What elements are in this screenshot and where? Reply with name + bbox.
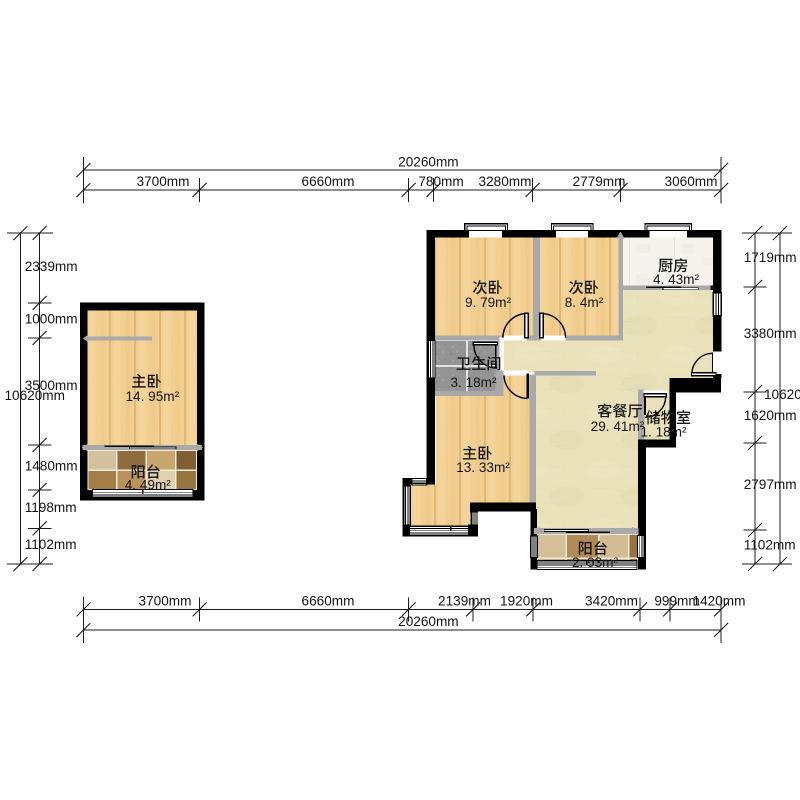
svg-text:14. 95m²: 14. 95m² bbox=[125, 389, 179, 404]
svg-text:1102mm: 1102mm bbox=[744, 538, 796, 553]
svg-text:3280mm: 3280mm bbox=[479, 174, 532, 189]
svg-text:13. 33m²: 13. 33m² bbox=[456, 460, 510, 475]
svg-text:3060mm: 3060mm bbox=[665, 174, 718, 189]
svg-text:3500mm: 3500mm bbox=[25, 378, 78, 393]
svg-text:4. 49m²: 4. 49m² bbox=[125, 478, 172, 493]
svg-text:20260mm: 20260mm bbox=[398, 155, 458, 170]
svg-text:1. 18m²: 1. 18m² bbox=[640, 425, 687, 440]
svg-text:2779mm: 2779mm bbox=[573, 174, 626, 189]
svg-text:780mm: 780mm bbox=[418, 174, 463, 189]
svg-text:2339mm: 2339mm bbox=[25, 259, 78, 274]
svg-text:3700mm: 3700mm bbox=[137, 174, 190, 189]
svg-text:4. 43m²: 4. 43m² bbox=[653, 272, 700, 287]
svg-text:1719mm: 1719mm bbox=[744, 250, 797, 265]
svg-text:3700mm: 3700mm bbox=[139, 594, 192, 609]
svg-text:20260mm: 20260mm bbox=[398, 614, 458, 629]
svg-text:1198mm: 1198mm bbox=[25, 500, 77, 515]
svg-text:8. 4m²: 8. 4m² bbox=[565, 295, 604, 310]
svg-text:3380mm: 3380mm bbox=[744, 326, 797, 341]
svg-text:2797mm: 2797mm bbox=[744, 477, 797, 492]
svg-text:6660mm: 6660mm bbox=[302, 594, 355, 609]
svg-text:10620mm: 10620mm bbox=[764, 387, 800, 402]
svg-text:1480mm: 1480mm bbox=[25, 459, 78, 474]
svg-text:1000mm: 1000mm bbox=[25, 312, 78, 327]
svg-text:1620mm: 1620mm bbox=[744, 408, 797, 423]
svg-text:1920mm: 1920mm bbox=[500, 594, 553, 609]
svg-text:3. 18m²: 3. 18m² bbox=[450, 375, 497, 390]
svg-text:2139mm: 2139mm bbox=[438, 594, 491, 609]
svg-text:1420mm: 1420mm bbox=[693, 594, 746, 609]
svg-text:29. 41m²: 29. 41m² bbox=[591, 419, 645, 434]
svg-text:6660mm: 6660mm bbox=[302, 174, 355, 189]
svg-text:3420mm: 3420mm bbox=[585, 594, 638, 609]
svg-text:1102mm: 1102mm bbox=[25, 537, 77, 552]
svg-text:9. 79m²: 9. 79m² bbox=[465, 295, 512, 310]
svg-text:2. 93m²: 2. 93m² bbox=[572, 555, 619, 570]
